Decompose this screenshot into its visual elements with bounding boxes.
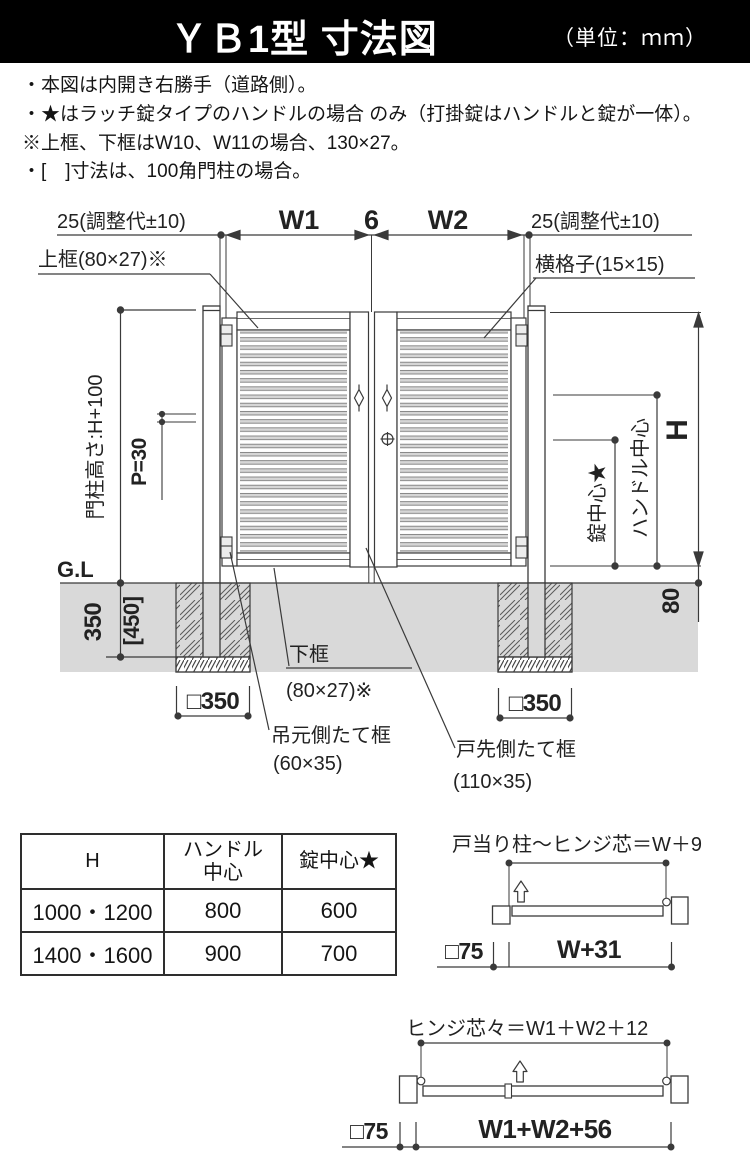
note-line: ※上框、下框はW10、W11の場合、130×27。 — [22, 130, 742, 159]
col-header-handle: ハンドル 中心 — [164, 834, 282, 889]
swing-arrow-icon — [514, 881, 528, 902]
label-gl: G.L — [57, 557, 94, 582]
dim-depth: 350 — [80, 603, 107, 642]
post-left — [203, 306, 220, 657]
plan2-title: ヒンジ芯々＝W1＋W2＋12 — [406, 1017, 648, 1040]
cell-handle: 800 — [164, 889, 282, 932]
col-header-lock: 錠中心★ — [282, 834, 396, 889]
gate-leaf-left — [222, 312, 369, 567]
dim-gap6: 6 — [364, 205, 379, 235]
plan2-width-dim: W1+W2+56 — [478, 1114, 611, 1144]
dim-bottom-gap: 80 — [658, 588, 685, 614]
plan1-width-dim: W+31 — [557, 936, 622, 964]
cell-lock: 600 — [282, 889, 396, 932]
dim-post-height: 門柱高さ:H+100 — [84, 374, 107, 519]
dim-footing-right: □350 — [509, 690, 562, 717]
page-title: ＹＢ1型 寸法図 — [170, 8, 438, 63]
plan2-post-dim: □75 — [350, 1118, 389, 1144]
swing-arrow-icon — [513, 1061, 527, 1082]
label-latch-stile-size: (110×35) — [453, 771, 532, 793]
dim-w2: W2 — [428, 205, 469, 235]
dim-right-adjust: 25(調整代±10) — [531, 210, 660, 233]
dimension-pitch — [157, 411, 196, 500]
note-line: ・[ ]寸法は、100角門柱の場合。 — [22, 158, 742, 187]
drop-rod — [369, 567, 374, 583]
table-row: 1000・1200 800 600 — [21, 889, 396, 932]
label-cross-bar: 横格子(15×15) — [535, 253, 665, 276]
dim-pitch: P=30 — [128, 438, 151, 486]
table-header-row: H ハンドル 中心 錠中心★ — [21, 834, 396, 889]
label-hinge-stile-size: (60×35) — [273, 753, 343, 775]
unit-note: （単位：ｍｍ） — [553, 22, 707, 52]
dimension-table: H ハンドル 中心 錠中心★ 1000・1200 800 600 1400・16… — [20, 833, 397, 976]
dimension-right-group — [550, 313, 703, 623]
note-line: ・本図は内開き右勝手（道路側）。 — [22, 72, 742, 101]
cell-handle: 900 — [164, 932, 282, 975]
dim-handle-center: ハンドル中心 — [629, 418, 652, 538]
col-header-handle-line1: ハンドル — [165, 839, 281, 862]
dim-footing-left: □350 — [187, 688, 240, 715]
label-hinge-stile: 吊元側たて框 — [271, 724, 391, 747]
label-bottom-rail: 下框 — [289, 643, 329, 666]
ground — [60, 583, 698, 672]
plan1-post-dim: □75 — [445, 938, 484, 964]
dim-lock-center: 錠中心★ — [586, 463, 609, 543]
cell-lock: 700 — [282, 932, 396, 975]
dim-w1: W1 — [279, 205, 320, 235]
cell-h: 1400・1600 — [21, 932, 164, 975]
dimension-sheet: 25(調整代±10) W1 6 W2 25(調整代±10) 上框(80×27)※… — [0, 0, 750, 1173]
notes-block: ・本図は内開き右勝手（道路側）。 ・★はラッチ錠タイプのハンドルの場合 のみ（打… — [22, 72, 742, 187]
plan1-title: 戸当り柱～ヒンジ芯＝W＋9 — [452, 833, 702, 856]
col-header-handle-line2: 中心 — [165, 862, 281, 885]
dim-depth-alt: [450] — [119, 596, 144, 645]
note-line: ・★はラッチ錠タイプのハンドルの場合 のみ（打掛錠はハンドルと錠が一体）。 — [22, 101, 742, 130]
col-header-h: H — [21, 834, 164, 889]
dim-left-adjust: 25(調整代±10) — [57, 210, 186, 233]
label-top-rail: 上框(80×27)※ — [38, 248, 168, 271]
table-row: 1400・1600 900 700 — [21, 932, 396, 975]
post-right — [528, 306, 545, 657]
label-bottom-rail-size: (80×27)※ — [286, 680, 372, 702]
gate-leaf-right — [375, 312, 527, 567]
cell-h: 1000・1200 — [21, 889, 164, 932]
label-latch-stile: 戸先側たて框 — [456, 738, 576, 761]
dim-height: H — [661, 419, 694, 441]
title-bar: ＹＢ1型 寸法図 （単位：ｍｍ） — [0, 0, 750, 63]
